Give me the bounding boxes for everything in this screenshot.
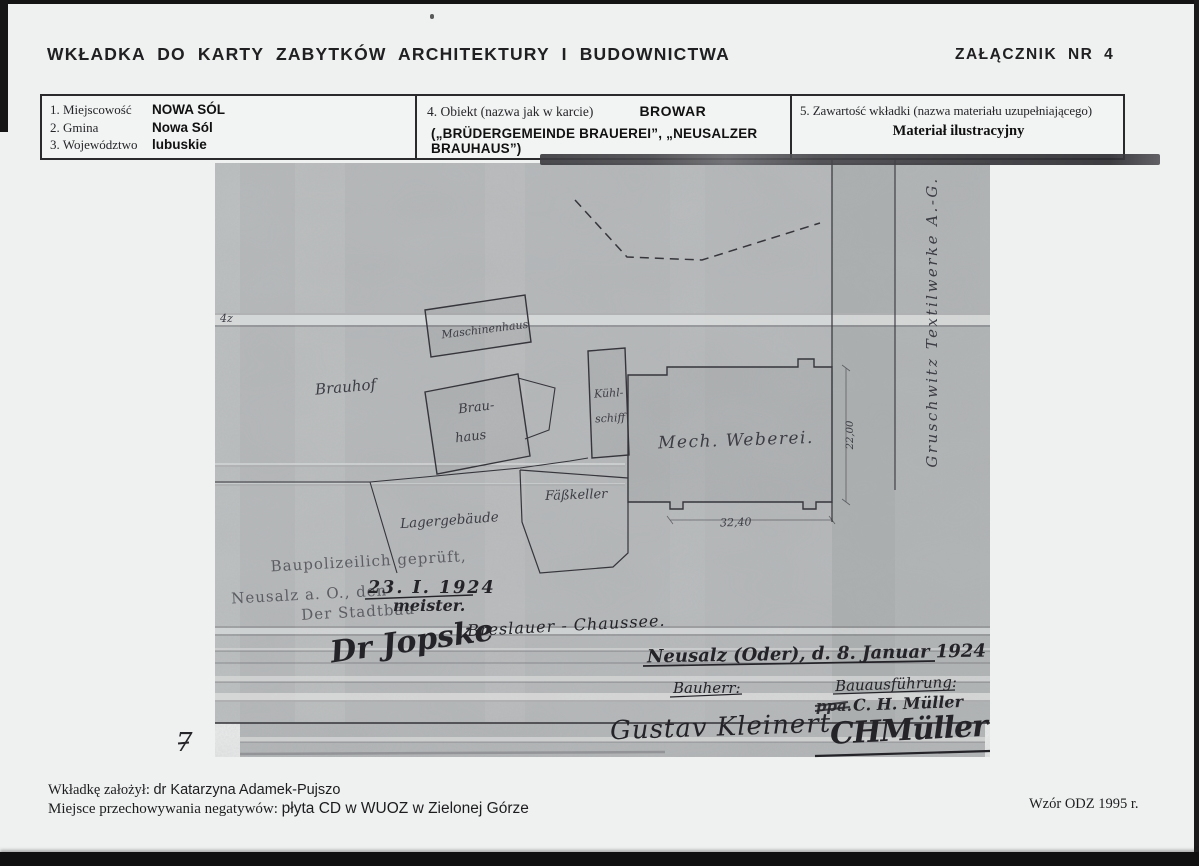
stamp-meister: meister. [393,596,465,615]
contents-value: Materiał ilustracyjny [800,123,1117,140]
field-value: NOWA SÓL [152,101,407,119]
plot-mark: 4z [219,312,233,325]
negatives-label: Miejsce przechowywania negatywów: [48,801,278,817]
field-label: 3. Województwo [50,136,152,154]
neighbor-label-gruschwitz: Gruschwitz Textilwerke A.-G. [923,176,941,467]
field-gmina: 2. Gmina Nowa Sól [50,119,407,137]
field-miejscowosc: 1. Miejscowość NOWA SÓL [50,101,407,119]
dimension-depth: 22,00 [845,420,856,450]
dust-speck [430,14,434,19]
scan-background [215,163,990,757]
scan-edge-top [0,0,1199,4]
object-row: 4. Obiekt (nazwa jak w karcie) BROWAR [427,103,782,121]
site-plan-scan: 4z Maschinenhaus Brauhof Brau- haus Kühl… [215,150,990,762]
building-brauhaus [425,374,530,474]
created-by-label: Wkładkę założył: [48,782,150,798]
object-label: 4. Obiekt (nazwa jak w karcie) [427,104,593,119]
building-label-kuehlschiff-2: schiff [595,411,628,426]
stamp-date: 23. I. 1924 [367,578,496,598]
footer-negatives: Miejsce przechowywania negatywów: płyta … [48,800,529,818]
negatives-value: płyta CD w WUOZ w Zielonej Górze [282,800,529,817]
scan-edge-left [0,0,8,132]
building-label-faesskeller: Fäßkeller [544,487,609,504]
field-label: 2. Gmina [50,119,152,137]
field-label: 1. Miejscowość [50,101,152,119]
object-alt-names: („BRÜDERGEMEINDE BRAUEREI”, „NEUSALZER B… [431,126,782,156]
field-value: Nowa Sól [152,119,407,137]
building-kuehlschiff [588,348,629,458]
created-by-value: dr Katarzyna Adamek-Pujszo [153,782,340,798]
annex-label: ZAŁĄCZNIK NR 4 [955,46,1114,64]
contents-cell: 5. Zawartość wkładki (nazwa materiału uz… [792,96,1123,158]
scan-shadow-strip [540,154,1160,165]
dimension-width: 32,40 [720,515,752,529]
footer-created-by: Wkładkę założył: dr Katarzyna Adamek-Puj… [48,782,340,799]
handwritten-page-number: 7 [176,728,193,758]
info-table: 1. Miejscowość NOWA SÓL 2. Gmina Nowa Só… [40,94,1125,160]
bauherr-label: Bauherr: [672,679,741,697]
object-value: BROWAR [639,103,706,119]
object-cell: 4. Obiekt (nazwa jak w karcie) BROWAR („… [417,96,792,158]
contents-label: 5. Zawartość wkładki (nazwa materiału uz… [800,103,1117,119]
field-value: lubuskie [152,136,407,154]
field-wojewodztwo: 3. Województwo lubuskie [50,136,407,154]
location-cell: 1. Miejscowość NOWA SÓL 2. Gmina Nowa Só… [42,96,417,158]
scan-edge-bottom [0,852,1199,866]
building-label-kuehlschiff-1: Kühl- [593,386,624,401]
form-note: Wzór ODZ 1995 r. [1029,796,1139,813]
scan-edge-right [1194,0,1199,866]
page-title: WKŁADKA DO KARTY ZABYTKÓW ARCHITEKTURY I… [47,44,730,65]
